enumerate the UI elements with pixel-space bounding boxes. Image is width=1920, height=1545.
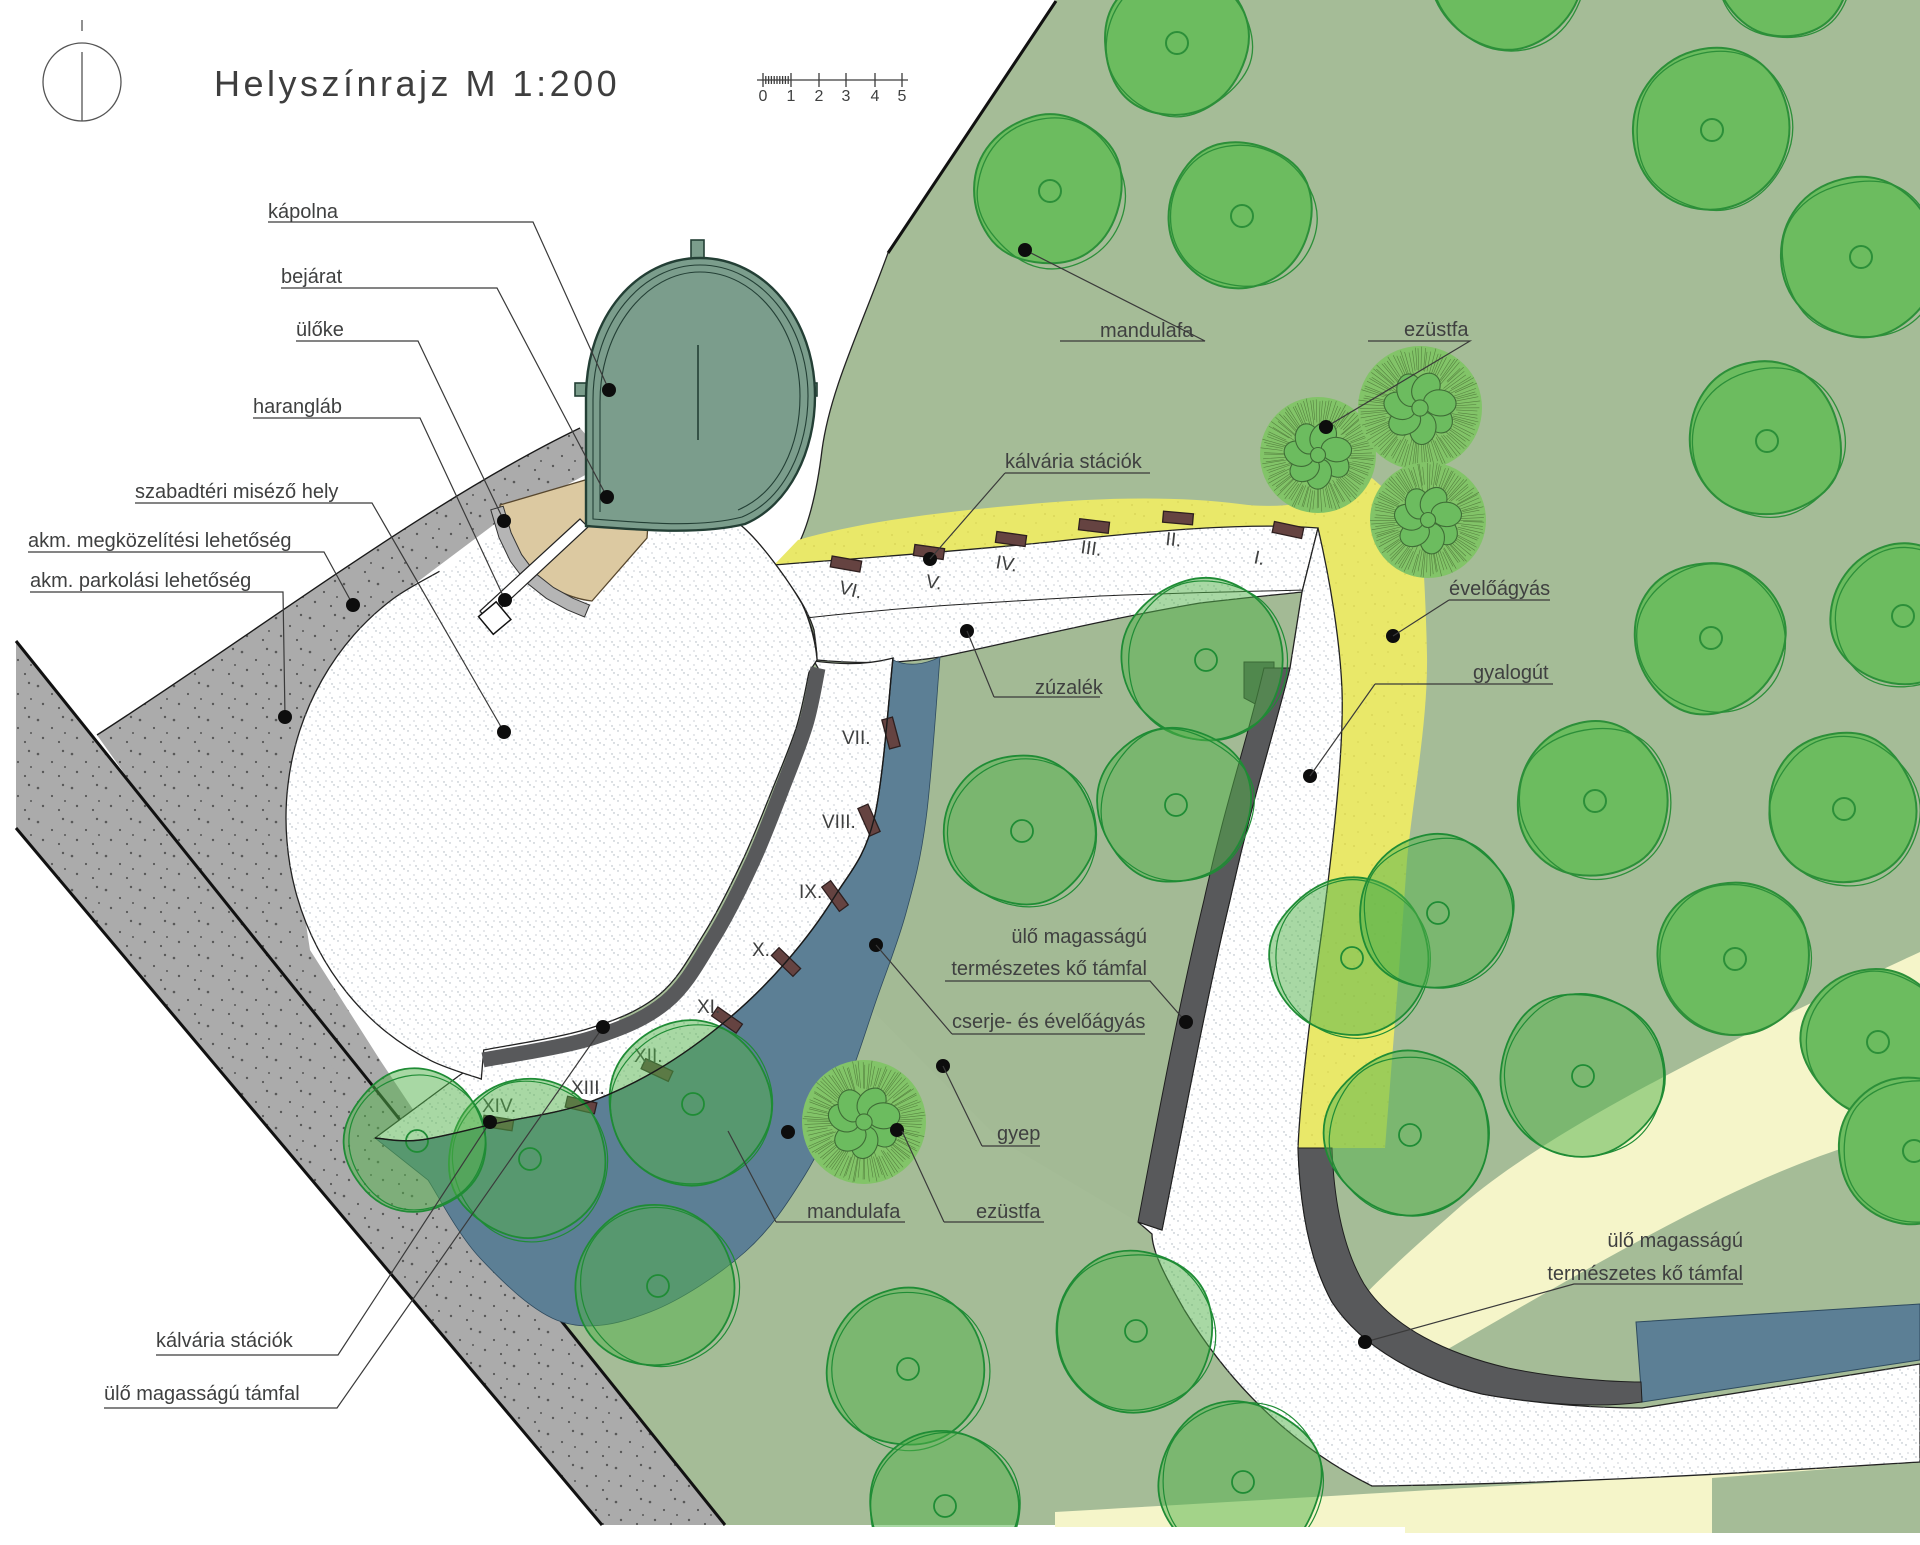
svg-text:III.: III.: [1079, 537, 1103, 561]
svg-text:ülő magasságú: ülő magasságú: [1011, 926, 1147, 948]
svg-text:ezüstfa: ezüstfa: [976, 1201, 1041, 1223]
svg-text:gyep: gyep: [997, 1123, 1040, 1145]
svg-text:2: 2: [815, 88, 824, 105]
svg-text:akm. megközelítési lehetőség: akm. megközelítési lehetőség: [28, 530, 291, 552]
svg-text:IX.: IX.: [799, 882, 822, 903]
svg-text:mandulafa: mandulafa: [807, 1201, 901, 1223]
svg-text:4: 4: [871, 88, 880, 105]
svg-text:cserje- és évelőágyás: cserje- és évelőágyás: [952, 1011, 1145, 1033]
svg-text:kálvária stációk: kálvária stációk: [1005, 451, 1143, 473]
svg-text:akm. parkolási lehetőség: akm. parkolási lehetőség: [30, 570, 251, 592]
svg-text:szabadtéri miséző hely: szabadtéri miséző hely: [135, 481, 338, 503]
svg-text:ülő magasságú támfal: ülő magasságú támfal: [104, 1383, 300, 1405]
svg-text:VII.: VII.: [842, 728, 871, 749]
svg-text:X.: X.: [752, 940, 770, 961]
svg-text:IV.: IV.: [994, 552, 1019, 576]
svg-text:0: 0: [759, 88, 768, 105]
svg-text:kálvária stációk: kálvária stációk: [156, 1330, 294, 1352]
svg-text:évelőágyás: évelőágyás: [1449, 578, 1550, 600]
svg-text:VIII.: VIII.: [822, 812, 856, 833]
svg-text:1: 1: [787, 88, 796, 105]
svg-text:természetes kő támfal: természetes kő támfal: [1547, 1263, 1743, 1285]
svg-text:természetes kő támfal: természetes kő támfal: [951, 958, 1147, 980]
svg-text:gyalogút: gyalogút: [1473, 662, 1549, 684]
svg-text:5: 5: [898, 88, 907, 105]
svg-text:XI.: XI.: [697, 997, 720, 1018]
svg-text:bejárat: bejárat: [281, 266, 343, 288]
svg-text:mandulafa: mandulafa: [1100, 320, 1194, 342]
svg-text:zúzalék: zúzalék: [1035, 677, 1104, 699]
svg-text:ülőke: ülőke: [296, 319, 344, 341]
svg-text:ezüstfa: ezüstfa: [1404, 319, 1469, 341]
svg-text:ülő magasságú: ülő magasságú: [1607, 1230, 1743, 1252]
svg-text:3: 3: [842, 88, 851, 105]
svg-text:kápolna: kápolna: [268, 201, 339, 223]
svg-text:harangláb: harangláb: [253, 396, 342, 418]
svg-text:Helyszínrajz M 1:200: Helyszínrajz M 1:200: [214, 63, 620, 104]
svg-text:II.: II.: [1164, 529, 1182, 552]
